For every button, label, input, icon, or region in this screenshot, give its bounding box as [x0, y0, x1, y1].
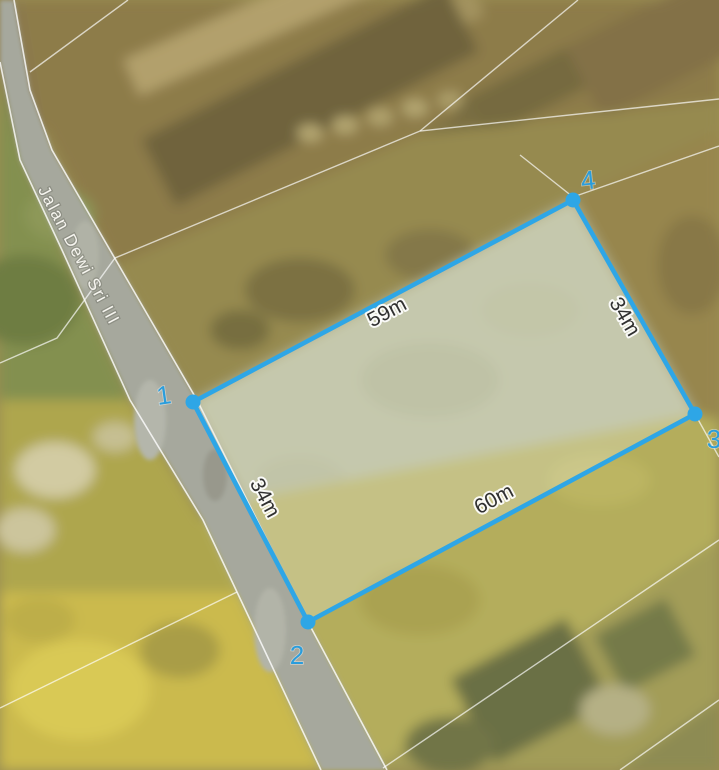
vertex-label-2: 2: [290, 640, 304, 670]
vertex-handle-2[interactable]: [301, 615, 316, 630]
satellite-map-canvas[interactable]: Jalan Dewi Sri III 1 2 3 4 59m 34m 60m 3…: [0, 0, 719, 770]
vertex-handle-4[interactable]: [566, 193, 581, 208]
vertex-label-3: 3: [707, 424, 719, 454]
vertex-handle-3[interactable]: [688, 407, 703, 422]
vertex-handle-1[interactable]: [186, 395, 201, 410]
